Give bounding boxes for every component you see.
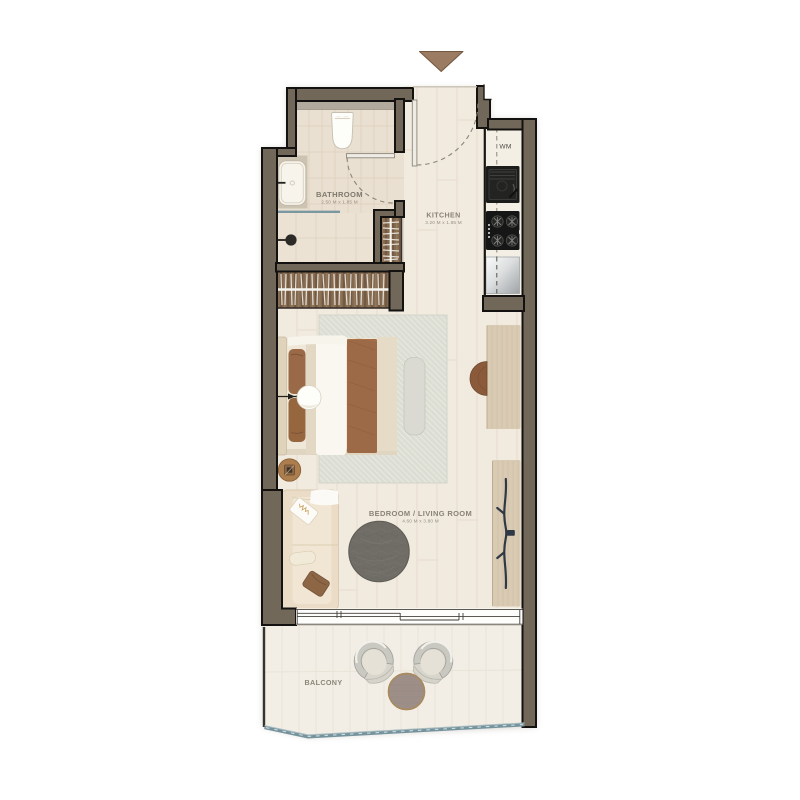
- svg-text:BEDROOM / LIVING ROOM: BEDROOM / LIVING ROOM: [369, 509, 472, 518]
- svg-text:KITCHEN: KITCHEN: [426, 212, 460, 220]
- svg-text:BATHROOM: BATHROOM: [316, 190, 363, 199]
- svg-text:3.20 M x 1.85 M: 3.20 M x 1.85 M: [425, 220, 462, 225]
- svg-text:WM: WM: [499, 144, 511, 151]
- svg-text:2.50 M x 1.85 M: 2.50 M x 1.85 M: [321, 200, 358, 205]
- svg-text:BALCONY: BALCONY: [305, 678, 343, 687]
- svg-text:4.60 M x 3.80 M: 4.60 M x 3.80 M: [402, 519, 439, 524]
